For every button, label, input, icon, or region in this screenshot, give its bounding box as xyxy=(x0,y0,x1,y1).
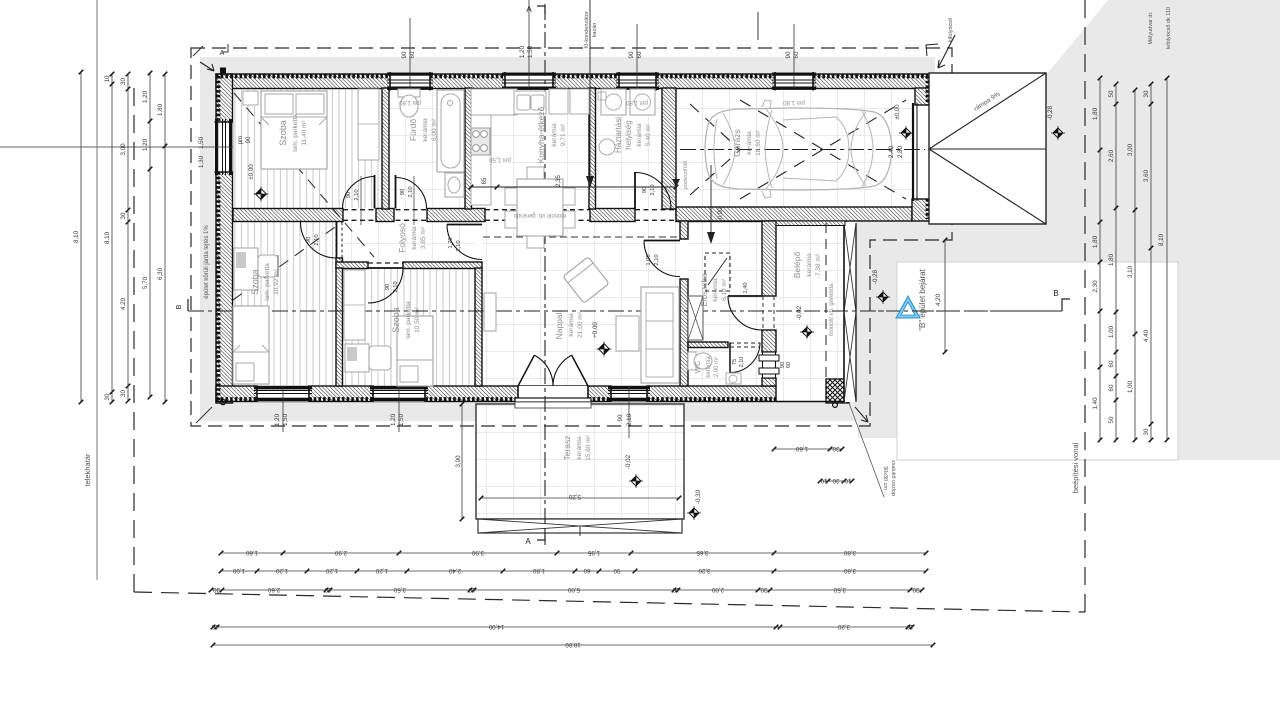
svg-text:6,00 m²: 6,00 m² xyxy=(431,118,438,141)
svg-text:Konyha-étkező: Konyha-étkező xyxy=(536,106,546,163)
svg-text:60: 60 xyxy=(1108,360,1115,367)
svg-text:90: 90 xyxy=(306,237,312,243)
svg-text:10: 10 xyxy=(324,586,331,593)
svg-text:1,00: 1,00 xyxy=(1127,380,1134,393)
svg-text:-0,28: -0,28 xyxy=(1047,105,1054,120)
svg-text:30: 30 xyxy=(832,445,839,452)
svg-text:10: 10 xyxy=(672,586,679,593)
svg-text:1,20: 1,20 xyxy=(325,567,338,574)
svg-text:90: 90 xyxy=(246,136,252,143)
svg-text:1,00: 1,00 xyxy=(232,567,245,574)
svg-text:kazán: kazán xyxy=(592,23,598,38)
svg-text:1,80: 1,80 xyxy=(1092,107,1099,120)
svg-text:pm: pm xyxy=(238,136,244,144)
svg-text:60: 60 xyxy=(636,51,643,58)
svg-text:11,40 m²: 11,40 m² xyxy=(301,120,308,146)
svg-text:5,40 m²: 5,40 m² xyxy=(645,123,652,146)
svg-text:3,50: 3,50 xyxy=(393,586,406,593)
svg-text:2,10: 2,10 xyxy=(626,413,633,426)
svg-text:30: 30 xyxy=(120,390,127,397)
svg-text:60: 60 xyxy=(583,567,590,574)
svg-text:3,10: 3,10 xyxy=(1127,265,1134,278)
svg-text:1,00: 1,00 xyxy=(646,254,652,265)
svg-text:telekhatár: telekhatár xyxy=(83,453,92,486)
svg-text:7,38 m²: 7,38 m² xyxy=(815,253,822,276)
svg-text:kerámia: kerámia xyxy=(806,253,813,277)
svg-text:90: 90 xyxy=(785,51,792,58)
svg-text:1,20: 1,20 xyxy=(275,567,288,574)
svg-text:A: A xyxy=(525,537,531,546)
svg-text:pm 1,80: pm 1,80 xyxy=(399,99,421,105)
svg-text:2,00 m²: 2,00 m² xyxy=(714,357,720,377)
svg-text:3,50: 3,50 xyxy=(833,586,846,593)
svg-text:90: 90 xyxy=(400,189,406,195)
svg-text:3,90: 3,90 xyxy=(471,549,484,556)
svg-text:2,30: 2,30 xyxy=(1092,280,1099,293)
svg-text:30: 30 xyxy=(120,78,127,85)
svg-text:30: 30 xyxy=(1143,90,1150,97)
svg-text:60: 60 xyxy=(793,51,800,58)
svg-text:1,20: 1,20 xyxy=(375,567,388,574)
svg-text:30: 30 xyxy=(832,477,839,484)
svg-text:-0,28: -0,28 xyxy=(872,269,879,284)
svg-text:monolit vb. gerenda: monolit vb. gerenda xyxy=(829,283,835,336)
svg-text:5,00: 5,00 xyxy=(567,586,580,593)
svg-text:1,20: 1,20 xyxy=(142,138,149,151)
svg-text:1,60: 1,60 xyxy=(245,549,258,556)
svg-text:6,10 m²: 6,10 m² xyxy=(721,278,728,301)
svg-text:-0,30: -0,30 xyxy=(695,489,702,504)
svg-text:3,00: 3,00 xyxy=(120,143,127,156)
svg-text:kerámia: kerámia xyxy=(706,356,712,378)
svg-text:30: 30 xyxy=(104,393,111,400)
svg-text:lam. parketta: lam. parketta xyxy=(292,114,299,152)
svg-text:Szoba: Szoba xyxy=(278,120,288,146)
svg-text:2,40: 2,40 xyxy=(448,567,461,574)
svg-text:1,80: 1,80 xyxy=(1108,253,1115,266)
svg-text:90: 90 xyxy=(617,414,624,421)
svg-text:kerámia: kerámia xyxy=(746,131,753,155)
svg-text:60: 60 xyxy=(409,51,416,58)
svg-text:1,80: 1,80 xyxy=(532,567,545,574)
svg-text:90: 90 xyxy=(346,192,352,198)
svg-text:zsalukő oszlop: zsalukő oszlop xyxy=(890,460,896,496)
svg-text:21,00 m²: 21,00 m² xyxy=(577,311,584,337)
svg-text:kerámia: kerámia xyxy=(411,226,418,250)
svg-text:±0,00: ±0,00 xyxy=(248,164,255,180)
svg-text:2,90: 2,90 xyxy=(334,549,347,556)
svg-text:A: A xyxy=(526,5,532,14)
svg-text:15,60 m²: 15,60 m² xyxy=(585,434,592,460)
svg-text:3,60: 3,60 xyxy=(1143,169,1150,182)
svg-text:-0,02: -0,02 xyxy=(625,454,632,469)
svg-text:Nappali: Nappali xyxy=(554,310,564,339)
svg-text:18,60 m²: 18,60 m² xyxy=(755,129,762,155)
svg-text:50: 50 xyxy=(1108,416,1115,423)
svg-text:lam. parketta: lam. parketta xyxy=(405,301,412,339)
svg-text:kifolyócső: kifolyócső xyxy=(948,18,954,42)
svg-text:3,20: 3,20 xyxy=(837,623,850,630)
svg-text:18,00: 18,00 xyxy=(565,641,581,648)
svg-text:2,00: 2,00 xyxy=(711,586,724,593)
svg-text:30: 30 xyxy=(213,586,220,593)
svg-text:Előszoba: Előszoba xyxy=(700,273,709,306)
svg-text:2,10: 2,10 xyxy=(739,357,745,368)
svg-text:10: 10 xyxy=(906,623,913,630)
svg-text:1,95: 1,95 xyxy=(587,549,600,556)
svg-text:30: 30 xyxy=(1143,428,1150,435)
svg-text:1,50: 1,50 xyxy=(527,45,534,58)
svg-text:90: 90 xyxy=(385,284,391,290)
svg-text:10: 10 xyxy=(820,477,827,484)
svg-text:podesztfűtő: podesztfűtő xyxy=(683,161,689,189)
svg-text:+0,00: +0,00 xyxy=(592,322,599,338)
svg-text:kerámia: kerámia xyxy=(551,123,558,147)
svg-text:kerámia: kerámia xyxy=(712,278,719,302)
svg-text:90: 90 xyxy=(628,51,635,58)
svg-text:3,00: 3,00 xyxy=(455,455,462,468)
svg-text:Mélyudvar dr.: Mélyudvar dr. xyxy=(1148,11,1154,44)
svg-text:beépítési vonal: beépítési vonal xyxy=(1071,442,1080,493)
svg-text:60: 60 xyxy=(1108,384,1115,391)
svg-text:1,30: 1,30 xyxy=(198,155,205,168)
svg-text:1,50: 1,50 xyxy=(282,413,289,426)
svg-text:2,10: 2,10 xyxy=(456,240,462,251)
svg-text:14,00: 14,00 xyxy=(488,623,504,630)
svg-text:30: 30 xyxy=(120,212,127,219)
svg-text:6,30: 6,30 xyxy=(157,267,164,280)
svg-text:±0,00: ±0,00 xyxy=(718,207,724,223)
svg-text:90: 90 xyxy=(613,567,620,574)
svg-text:2,10: 2,10 xyxy=(650,184,656,195)
svg-text:1,50: 1,50 xyxy=(398,413,405,426)
svg-text:1,20: 1,20 xyxy=(142,90,149,103)
svg-text:helyiség: helyiség xyxy=(624,120,633,149)
svg-text:pm 1,80: pm 1,80 xyxy=(626,99,648,105)
svg-text:2,60: 2,60 xyxy=(1108,149,1115,162)
svg-text:1,80: 1,80 xyxy=(157,103,164,116)
svg-text:8,10: 8,10 xyxy=(73,230,80,243)
svg-text:pm 1,80: pm 1,80 xyxy=(783,99,805,105)
svg-text:1,20: 1,20 xyxy=(390,413,397,426)
svg-text:1,20: 1,20 xyxy=(519,45,526,58)
svg-text:lam. parketta: lam. parketta xyxy=(264,263,271,301)
svg-text:1,60: 1,60 xyxy=(795,445,808,452)
svg-text:Folyosó: Folyosó xyxy=(397,223,407,253)
svg-text:2,80: 2,80 xyxy=(897,145,904,158)
svg-text:2,40: 2,40 xyxy=(888,145,895,158)
svg-text:60: 60 xyxy=(786,362,792,368)
svg-text:30x30 cm: 30x30 cm xyxy=(882,466,888,490)
svg-text:90: 90 xyxy=(401,51,408,58)
svg-text:±0,00: ±0,00 xyxy=(895,104,901,120)
svg-text:10,92 m²: 10,92 m² xyxy=(273,268,280,294)
svg-text:2,10: 2,10 xyxy=(393,281,399,292)
svg-text:5,20: 5,20 xyxy=(568,493,581,500)
svg-text:4,20: 4,20 xyxy=(935,293,942,306)
svg-text:A: A xyxy=(220,50,225,57)
svg-text:1,40: 1,40 xyxy=(1092,397,1099,410)
svg-text:30: 30 xyxy=(760,586,767,593)
svg-text:50: 50 xyxy=(1108,90,1115,97)
svg-text:2,60: 2,60 xyxy=(267,586,280,593)
svg-text:Fürdő: Fürdő xyxy=(408,119,418,141)
svg-text:1,00: 1,00 xyxy=(1108,325,1115,338)
svg-text:kerámia: kerámia xyxy=(636,123,643,147)
svg-text:1,80: 1,80 xyxy=(1092,235,1099,248)
svg-text:65: 65 xyxy=(482,177,488,184)
svg-text:pm 1,50: pm 1,50 xyxy=(489,156,511,162)
svg-text:4,20: 4,20 xyxy=(120,297,127,310)
svg-text:-0,02: -0,02 xyxy=(796,305,803,320)
svg-text:10,50 m²: 10,50 m² xyxy=(414,306,421,332)
svg-text:10: 10 xyxy=(468,586,475,593)
svg-text:Belépő: Belépő xyxy=(792,251,802,278)
svg-text:1,70: 1,70 xyxy=(448,237,454,248)
svg-text:3,80: 3,80 xyxy=(843,549,856,556)
svg-text:90: 90 xyxy=(642,187,648,193)
svg-text:10: 10 xyxy=(844,477,851,484)
svg-text:Szoba: Szoba xyxy=(250,269,260,295)
svg-text:3,20: 3,20 xyxy=(698,567,711,574)
svg-text:8,10: 8,10 xyxy=(1158,233,1165,246)
svg-text:1,20: 1,20 xyxy=(274,413,281,426)
svg-text:10: 10 xyxy=(211,623,218,630)
svg-text:9,71 m²: 9,71 m² xyxy=(560,123,567,146)
svg-text:3,65: 3,65 xyxy=(696,549,709,556)
svg-text:B: B xyxy=(176,304,183,309)
svg-text:3,80: 3,80 xyxy=(843,567,856,574)
svg-text:3,00: 3,00 xyxy=(1127,143,1134,156)
svg-text:2,35: 2,35 xyxy=(556,175,562,187)
svg-text:8,10: 8,10 xyxy=(104,231,111,244)
svg-text:Terasz: Terasz xyxy=(562,435,572,460)
svg-text:lefolyócső dk 110: lefolyócső dk 110 xyxy=(1166,7,1172,49)
svg-text:75: 75 xyxy=(732,359,738,365)
svg-text:monolit vb. gerendo: monolit vb. gerendo xyxy=(513,212,566,218)
svg-text:kerámia: kerámia xyxy=(422,118,429,142)
svg-text:WC: WC xyxy=(693,360,702,373)
svg-text:2,10: 2,10 xyxy=(408,186,414,197)
svg-text:1,50: 1,50 xyxy=(198,136,205,149)
svg-text:4,40: 4,40 xyxy=(1143,329,1150,342)
svg-text:30: 30 xyxy=(912,586,919,593)
svg-text:Háztartási: Háztartási xyxy=(614,117,623,153)
svg-text:10: 10 xyxy=(104,75,111,82)
svg-text:2,10: 2,10 xyxy=(654,254,660,265)
svg-text:Garázs: Garázs xyxy=(732,129,742,156)
svg-text:kerámia: kerámia xyxy=(568,313,575,337)
svg-text:kerámia: kerámia xyxy=(576,436,583,460)
svg-text:"B" épület bejárat: "B" épület bejárat xyxy=(918,268,927,330)
svg-text:KI-kondenzátor: KI-kondenzátor xyxy=(584,11,590,48)
svg-text:2,10: 2,10 xyxy=(354,189,360,200)
svg-text:1,40: 1,40 xyxy=(743,282,749,293)
svg-text:3,85 m²: 3,85 m² xyxy=(420,226,427,249)
svg-text:B: B xyxy=(1053,289,1058,298)
svg-text:épület körüli járda lejtés 1%: épület körüli járda lejtés 1% xyxy=(204,225,210,299)
svg-text:Szoba: Szoba xyxy=(391,307,401,333)
svg-text:5,70: 5,70 xyxy=(142,276,149,289)
